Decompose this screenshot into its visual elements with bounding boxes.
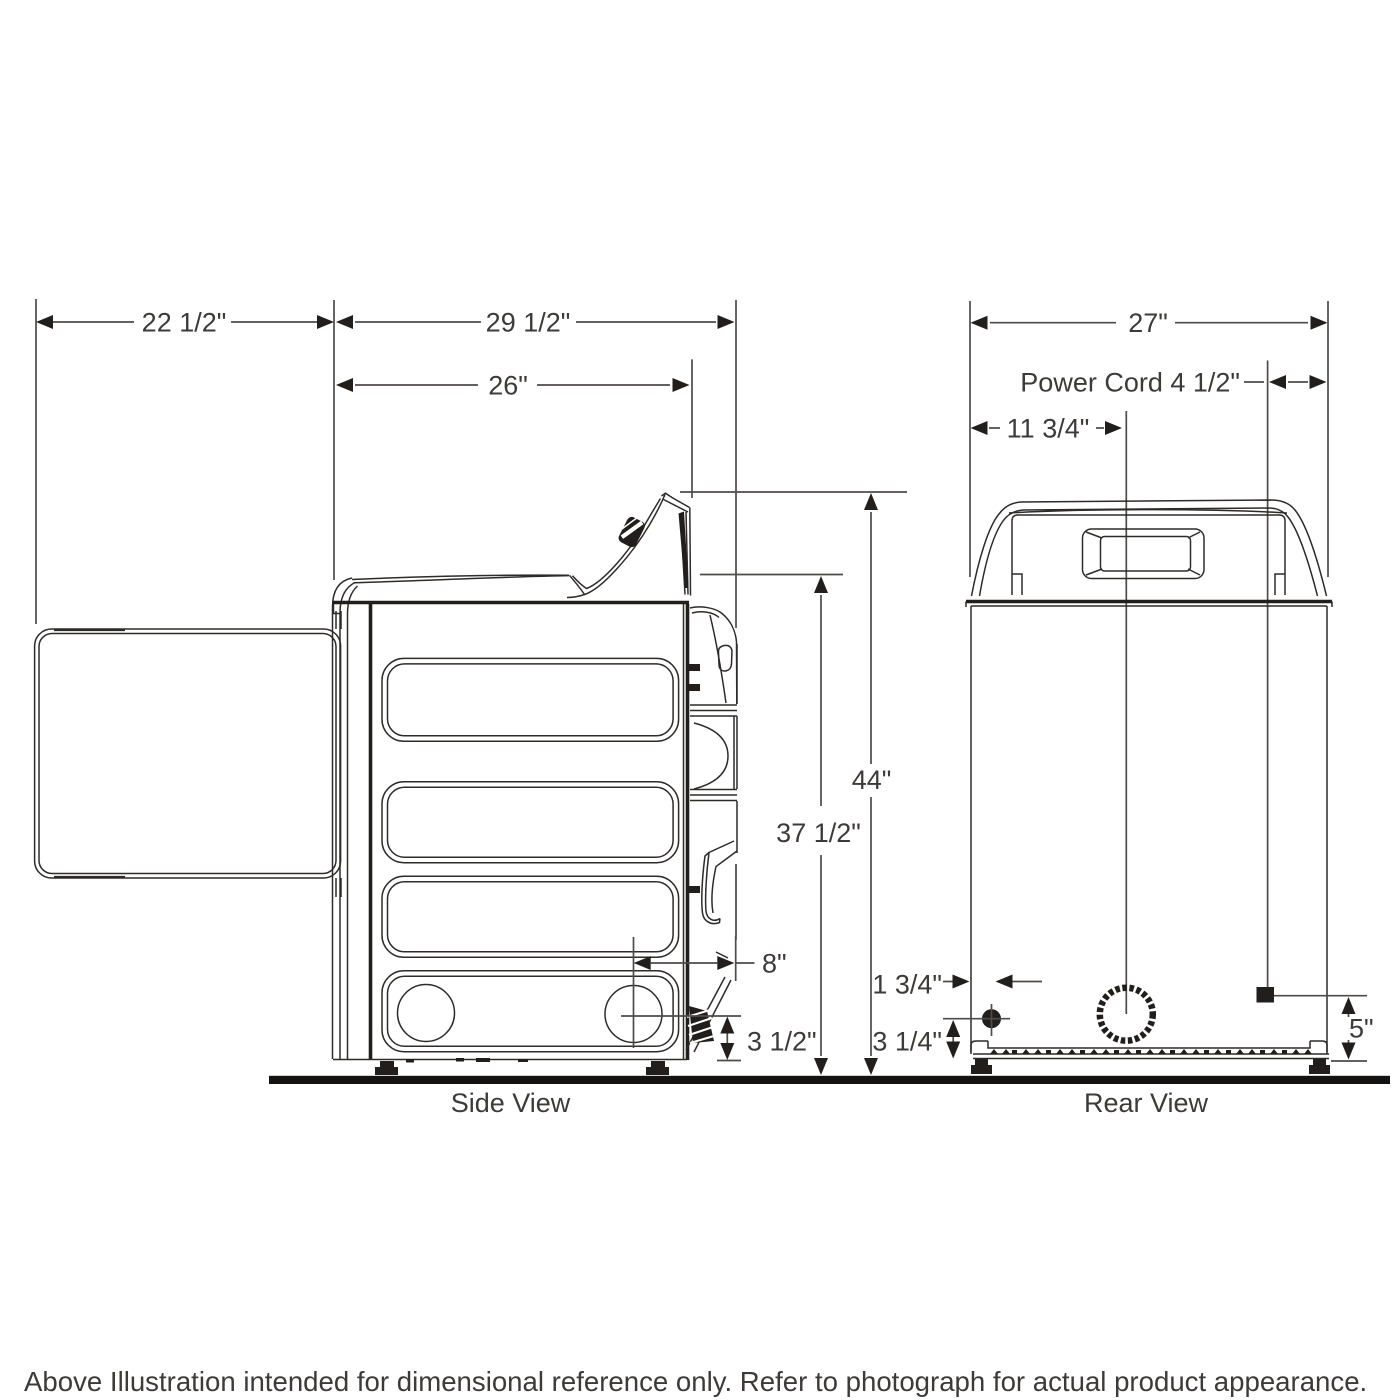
- svg-text:Rear View: Rear View: [1084, 1088, 1209, 1118]
- svg-text:5": 5": [1349, 1014, 1374, 1044]
- svg-text:3 1/4": 3 1/4": [872, 1027, 942, 1057]
- svg-text:26": 26": [488, 371, 528, 401]
- svg-text:1 3/4": 1 3/4": [872, 970, 942, 1000]
- svg-text:37 1/2": 37 1/2": [776, 818, 861, 848]
- svg-text:Above Illustration intended fo: Above Illustration intended for dimensio…: [24, 1366, 1367, 1397]
- svg-text:27": 27": [1128, 308, 1168, 338]
- svg-text:8": 8": [762, 949, 787, 979]
- svg-text:Side View: Side View: [451, 1088, 571, 1118]
- svg-text:11 3/4": 11 3/4": [1007, 414, 1090, 444]
- svg-text:44": 44": [852, 765, 892, 795]
- svg-text:22 1/2": 22 1/2": [142, 308, 227, 338]
- svg-text:Power Cord 4 1/2": Power Cord 4 1/2": [1020, 368, 1240, 398]
- svg-text:29 1/2": 29 1/2": [486, 308, 571, 338]
- svg-text:3 1/2": 3 1/2": [747, 1027, 817, 1057]
